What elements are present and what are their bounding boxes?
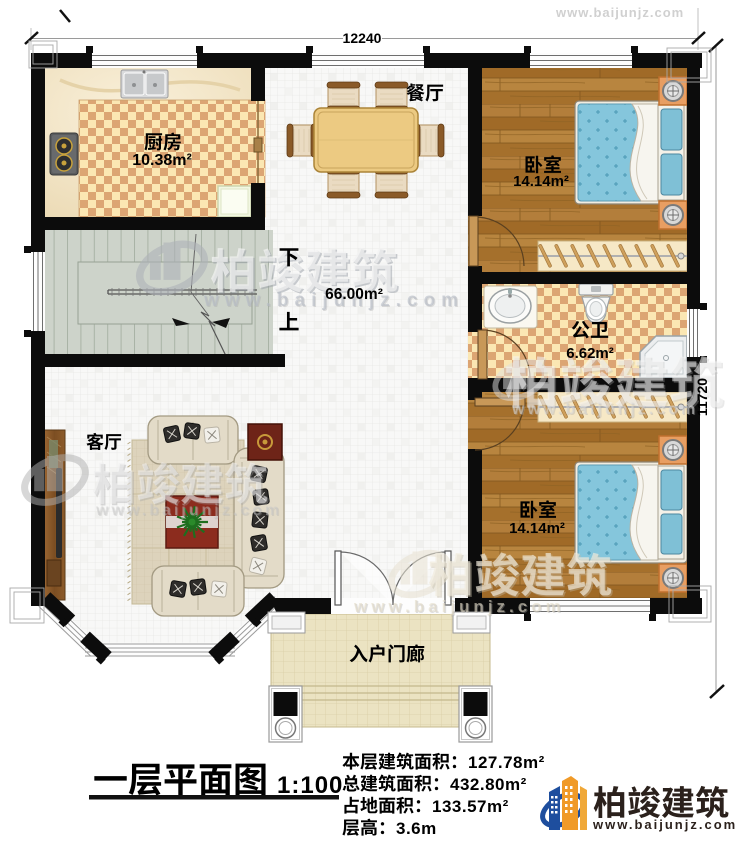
svg-text:11720: 11720 — [694, 378, 710, 416]
svg-text:6.62m²: 6.62m² — [566, 345, 614, 362]
svg-text:12240: 12240 — [343, 30, 382, 46]
svg-text:www.baijunjz.com: www.baijunjz.com — [511, 401, 698, 418]
svg-text:www.baijunjz.com: www.baijunjz.com — [353, 597, 565, 616]
svg-text:14.14m²: 14.14m² — [513, 173, 569, 190]
svg-text:www.baijunjz.com: www.baijunjz.com — [555, 5, 684, 20]
svg-text:3.6m: 3.6m — [396, 819, 437, 838]
svg-text:www.baijunjz.com: www.baijunjz.com — [592, 817, 737, 832]
svg-text:www.baijunjz.com: www.baijunjz.com — [95, 502, 282, 519]
svg-text:10.38m²: 10.38m² — [132, 152, 192, 169]
svg-text:66.00m²: 66.00m² — [325, 286, 383, 303]
svg-text:133.57m²: 133.57m² — [432, 797, 509, 816]
svg-text:14.14m²: 14.14m² — [509, 520, 565, 537]
svg-text:127.78m²: 127.78m² — [468, 753, 545, 772]
svg-text:432.80m²: 432.80m² — [450, 775, 527, 794]
svg-text:1:100: 1:100 — [277, 772, 343, 799]
